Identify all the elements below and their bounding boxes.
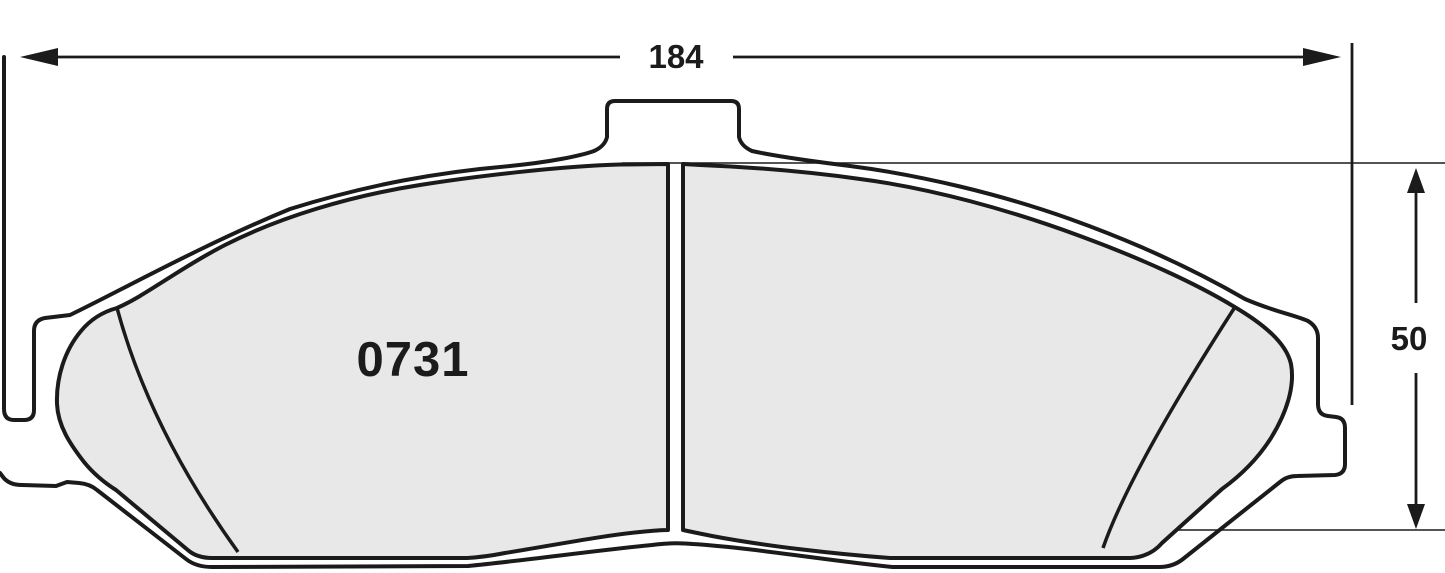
friction-material <box>57 164 1292 558</box>
drawing-canvas: 184 50 0731 <box>0 0 1445 573</box>
height-dimension-label: 50 <box>1391 320 1428 357</box>
part-number-label: 0731 <box>356 333 469 387</box>
width-dimension-label: 184 <box>648 38 704 75</box>
brake-pad-diagram: 184 50 0731 <box>0 0 1445 573</box>
arrowhead-up-icon <box>1407 168 1425 193</box>
arrowhead-left-icon <box>20 48 58 66</box>
arrowhead-down-icon <box>1407 504 1425 529</box>
arrowhead-right-icon <box>1303 48 1341 66</box>
height-dimension: 50 <box>1391 168 1428 529</box>
